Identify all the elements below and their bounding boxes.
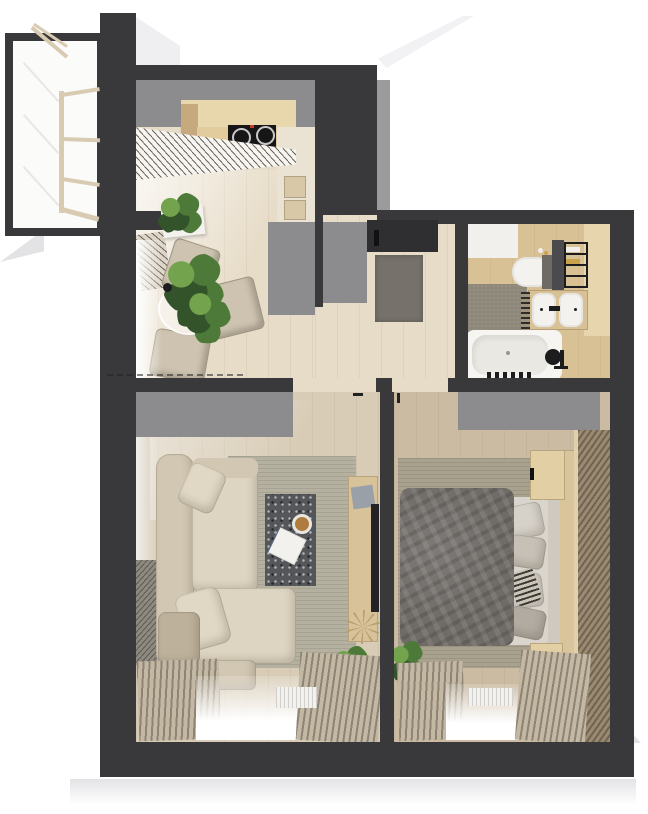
toilet-tank	[542, 255, 552, 289]
living-left-wall-face	[136, 437, 158, 562]
balcony-beam	[62, 177, 100, 187]
balcony-corner-post	[59, 91, 64, 213]
sofa-corner-seat	[158, 612, 200, 666]
toilet	[512, 257, 546, 287]
bathroom-tile-floor	[468, 284, 527, 336]
hob-indicator	[250, 125, 254, 128]
hall-wardrobe-block	[268, 222, 315, 315]
nightstand	[530, 450, 565, 500]
wall-side-face	[377, 80, 390, 212]
burner-icon	[256, 126, 275, 145]
balcony-glass-line	[23, 166, 59, 206]
wall-bottom	[100, 742, 634, 777]
bathroom-vanity	[552, 240, 564, 292]
cast-shadow-top-right	[378, 16, 474, 68]
living-door-threshold	[293, 378, 376, 392]
living-wardrobe-block	[136, 392, 293, 437]
coffee-cup	[292, 514, 312, 534]
towel	[566, 247, 580, 252]
wall-bathroom-left	[455, 224, 468, 392]
wall-room-divider	[380, 392, 394, 742]
wall-middle-right	[448, 378, 634, 392]
bedroom-door-threshold	[392, 378, 448, 392]
sink-drain	[540, 308, 543, 311]
threshold-ticks	[107, 374, 243, 376]
bedroom-wardrobe-block	[458, 392, 600, 430]
kitchen-plant	[156, 192, 204, 236]
kitchen-appliance	[284, 200, 306, 220]
wall-right	[610, 210, 634, 777]
bathtub-basin	[472, 335, 548, 375]
living-radiator	[276, 687, 317, 708]
balcony-beam	[61, 207, 99, 222]
tub-drain	[506, 351, 510, 355]
bedroom-door-handle	[397, 393, 400, 403]
kitchen-appliance	[284, 176, 306, 198]
window-light-dining	[136, 240, 162, 380]
wall-mid-block	[315, 65, 377, 215]
hall-wardrobe-block	[323, 222, 367, 303]
towel	[566, 259, 580, 264]
sink-basin	[559, 293, 583, 327]
bottle	[544, 251, 548, 255]
wall-left	[100, 13, 136, 777]
wall-middle-left	[100, 378, 293, 392]
nightstand-handle	[530, 468, 534, 480]
drop-shadow-bottom	[70, 779, 636, 805]
doormat	[375, 255, 423, 322]
shower-hose	[554, 366, 568, 369]
bathroom-white-corner	[468, 224, 518, 258]
bottle	[538, 248, 543, 253]
entry-door-handle	[374, 230, 379, 246]
slatted-bath-mat	[521, 292, 530, 330]
headboard	[546, 497, 560, 648]
balcony-glass-line	[23, 114, 59, 154]
balcony-beam	[62, 87, 100, 97]
floor-plan-render	[0, 0, 648, 814]
bedroom-radiator	[468, 688, 513, 706]
living-door-handle	[353, 393, 363, 396]
starburst-decor	[346, 610, 380, 644]
shower-head	[545, 349, 561, 365]
tv-on-partition	[371, 504, 379, 612]
gray-duvet	[400, 488, 514, 646]
wall-middle-junction	[376, 378, 392, 392]
roof-face-shadow	[136, 17, 180, 67]
balcony-beam	[62, 137, 100, 142]
wall-vent-grille	[136, 560, 157, 665]
faucet	[549, 306, 560, 311]
black-vase	[163, 283, 172, 292]
wall-hall-stub	[315, 215, 323, 307]
bedroom-curtain-right	[515, 650, 591, 745]
kitchen-counter-panel	[181, 100, 296, 127]
balcony-glass-line	[23, 62, 59, 102]
sink-drain	[574, 308, 577, 311]
balcony	[5, 33, 105, 236]
